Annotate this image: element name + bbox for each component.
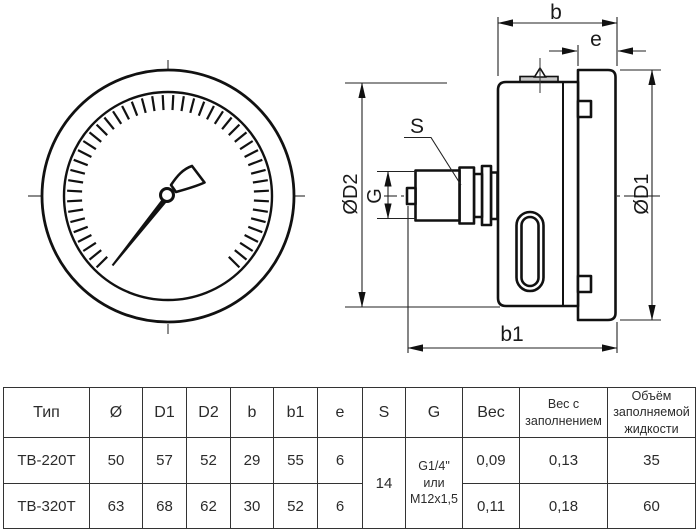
dim-e: e	[549, 28, 646, 66]
cell-diameter: 63	[90, 484, 143, 529]
manometer-datasheet: b e ØD1 ØD2	[0, 0, 700, 531]
cell-weight-filled: 0,13	[520, 438, 608, 484]
col-header-diameter: Ø	[90, 388, 143, 438]
cell-b1: 52	[274, 484, 318, 529]
col-header-d1: D1	[143, 388, 187, 438]
fitting-hex	[416, 171, 460, 221]
dim-d1-label: ØD1	[631, 173, 653, 214]
cell-type: ТВ-220Т	[4, 438, 90, 484]
fitting-nipple	[407, 188, 416, 204]
table-row: ТВ-320Т 63 68 62 30 52 6 0,11 0,18 60	[4, 484, 696, 529]
cell-fill-volume: 35	[608, 438, 696, 484]
cell-e: 6	[318, 438, 363, 484]
cell-d1: 68	[143, 484, 187, 529]
col-header-g: G	[406, 388, 463, 438]
col-header-b1: b1	[274, 388, 318, 438]
flange-clip-bottom	[578, 276, 591, 292]
dim-g-label: G	[364, 188, 386, 204]
header-row: Тип Ø D1 D2 b b1 e S G Вес Вес с заполне…	[4, 388, 696, 438]
cell-diameter: 50	[90, 438, 143, 484]
center-hub	[161, 189, 174, 202]
spec-table: Тип Ø D1 D2 b b1 e S G Вес Вес с заполне…	[3, 387, 696, 529]
cell-weight-filled: 0,18	[520, 484, 608, 529]
dim-s-label: S	[410, 115, 424, 138]
cell-weight: 0,09	[463, 438, 520, 484]
dim-e-label: e	[590, 28, 602, 51]
side-slot-inner	[522, 217, 539, 286]
flange-clip-top	[578, 101, 591, 117]
cell-b: 29	[231, 438, 274, 484]
col-header-weight-filled: Вес с заполнением	[520, 388, 608, 438]
cell-d2: 62	[187, 484, 231, 529]
cell-b1: 55	[274, 438, 318, 484]
cell-s-shared: 14	[363, 438, 406, 529]
col-header-weight: Вес	[463, 388, 520, 438]
col-header-s: S	[363, 388, 406, 438]
gauge-side-view	[384, 58, 660, 320]
cell-g-shared: G1/4" или M12x1,5	[406, 438, 463, 529]
col-header-b: b	[231, 388, 274, 438]
dim-b1-label: b1	[500, 323, 523, 346]
fitting-collar-3	[482, 166, 491, 225]
cell-fill-volume: 60	[608, 484, 696, 529]
col-header-fill-volume: Объём заполняемой жидкости	[608, 388, 696, 438]
col-header-d2: D2	[187, 388, 231, 438]
cell-d1: 57	[143, 438, 187, 484]
cell-type: ТВ-320Т	[4, 484, 90, 529]
dim-d1: ØD1	[620, 70, 661, 320]
gauge-front-view	[28, 60, 306, 334]
dim-d2-label: ØD2	[340, 173, 362, 214]
cell-b: 30	[231, 484, 274, 529]
cell-weight: 0,11	[463, 484, 520, 529]
technical-drawing: b e ØD1 ØD2	[0, 0, 700, 382]
fitting-collar-1	[460, 168, 475, 224]
table-row: ТВ-220Т 50 57 52 29 55 6 14 G1/4" или M1…	[4, 438, 696, 484]
cell-d2: 52	[187, 438, 231, 484]
cell-e: 6	[318, 484, 363, 529]
col-header-e: e	[318, 388, 363, 438]
col-header-type: Тип	[4, 388, 90, 438]
dim-b-label: b	[550, 1, 562, 24]
